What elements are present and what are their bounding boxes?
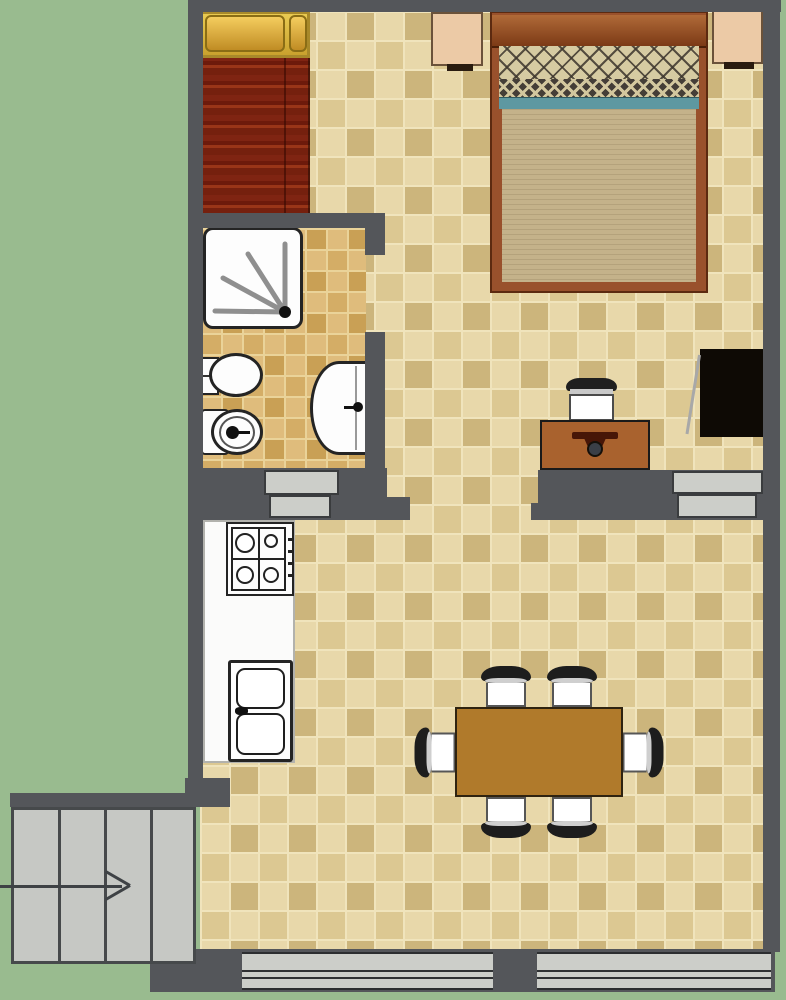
shower xyxy=(203,227,303,329)
bathroom-sink-faucet-handle xyxy=(344,406,354,409)
stove-knob-1 xyxy=(288,538,294,541)
dining-chair-bottom-left xyxy=(481,797,531,838)
single-bed-pillow-small xyxy=(289,15,307,52)
nightstand-right-shadow xyxy=(724,62,754,69)
chair-seat xyxy=(623,733,647,773)
double-bed-blanket xyxy=(494,109,704,289)
desk-chair-seat xyxy=(569,394,614,421)
double-bed-trim-band xyxy=(499,79,699,97)
wall-left xyxy=(188,0,203,795)
wall-top xyxy=(188,0,781,12)
door-threshold-bathroom-lower xyxy=(269,495,331,518)
stove-burner-back-left xyxy=(236,566,254,584)
window-bottom-left xyxy=(242,952,493,990)
single-bed-blanket xyxy=(200,55,310,215)
single-bed-pillow-long xyxy=(205,15,285,52)
desk-chair xyxy=(566,378,617,421)
chair-seat xyxy=(552,797,592,821)
kitchen-sink-basin-top xyxy=(236,668,285,709)
wall-bathroom-top xyxy=(200,213,385,228)
stove-knob-3 xyxy=(288,562,294,565)
stove-burner-front-left xyxy=(235,533,255,553)
dining-chair-bottom-right xyxy=(547,797,597,838)
stove-knob-4 xyxy=(288,574,294,577)
dining-chair-right xyxy=(623,728,664,778)
bidet-spout xyxy=(238,431,250,434)
stove-burner-front-right xyxy=(264,534,278,548)
double-bed xyxy=(490,11,708,293)
wardrobe xyxy=(700,349,763,437)
door-threshold-balcony-lower xyxy=(677,494,757,518)
stove xyxy=(226,522,294,596)
dining-chair-top-left xyxy=(481,666,531,707)
door-threshold-balcony-upper xyxy=(672,471,763,494)
wall-right xyxy=(763,0,780,952)
bathroom-sink xyxy=(310,361,368,455)
chair-seat xyxy=(552,683,592,707)
desk-drawer-knob xyxy=(587,441,603,457)
window-bottom-right xyxy=(537,952,771,990)
nightstand-right xyxy=(712,10,763,64)
nightstand-left-shadow xyxy=(447,64,473,71)
toilet-bowl xyxy=(209,353,263,397)
nightstand-left xyxy=(431,12,483,66)
stove-burner-back-right xyxy=(263,567,279,583)
bidet-bowl xyxy=(211,409,263,455)
shower-door-fan xyxy=(206,230,300,326)
stair-step-line-3 xyxy=(150,810,153,961)
dining-chair-left xyxy=(415,728,456,778)
double-bed-headboard xyxy=(492,15,706,48)
desk xyxy=(540,420,650,470)
direction-arrow-shaft xyxy=(0,885,122,888)
bathroom-sink-faucet xyxy=(353,402,363,412)
chair-seat xyxy=(486,683,526,707)
kitchen-sink-faucet xyxy=(235,707,248,715)
floor-plan xyxy=(0,0,786,1000)
stove-knob-2 xyxy=(288,550,294,553)
desk-drawer-bar xyxy=(572,432,618,439)
chair-seat xyxy=(432,733,456,773)
kitchen-sink-basin-bottom xyxy=(236,713,285,755)
kitchen-sink xyxy=(228,660,293,762)
door-threshold-bathroom-upper xyxy=(264,470,339,495)
dining-table xyxy=(455,707,623,797)
double-bed-pillows xyxy=(499,46,699,79)
wall-stairs-top xyxy=(10,793,196,807)
dining-chair-top-right xyxy=(547,666,597,707)
wall-bathroom-right xyxy=(365,332,385,470)
wall-bathroom-corner xyxy=(365,228,385,255)
chair-seat xyxy=(486,797,526,821)
